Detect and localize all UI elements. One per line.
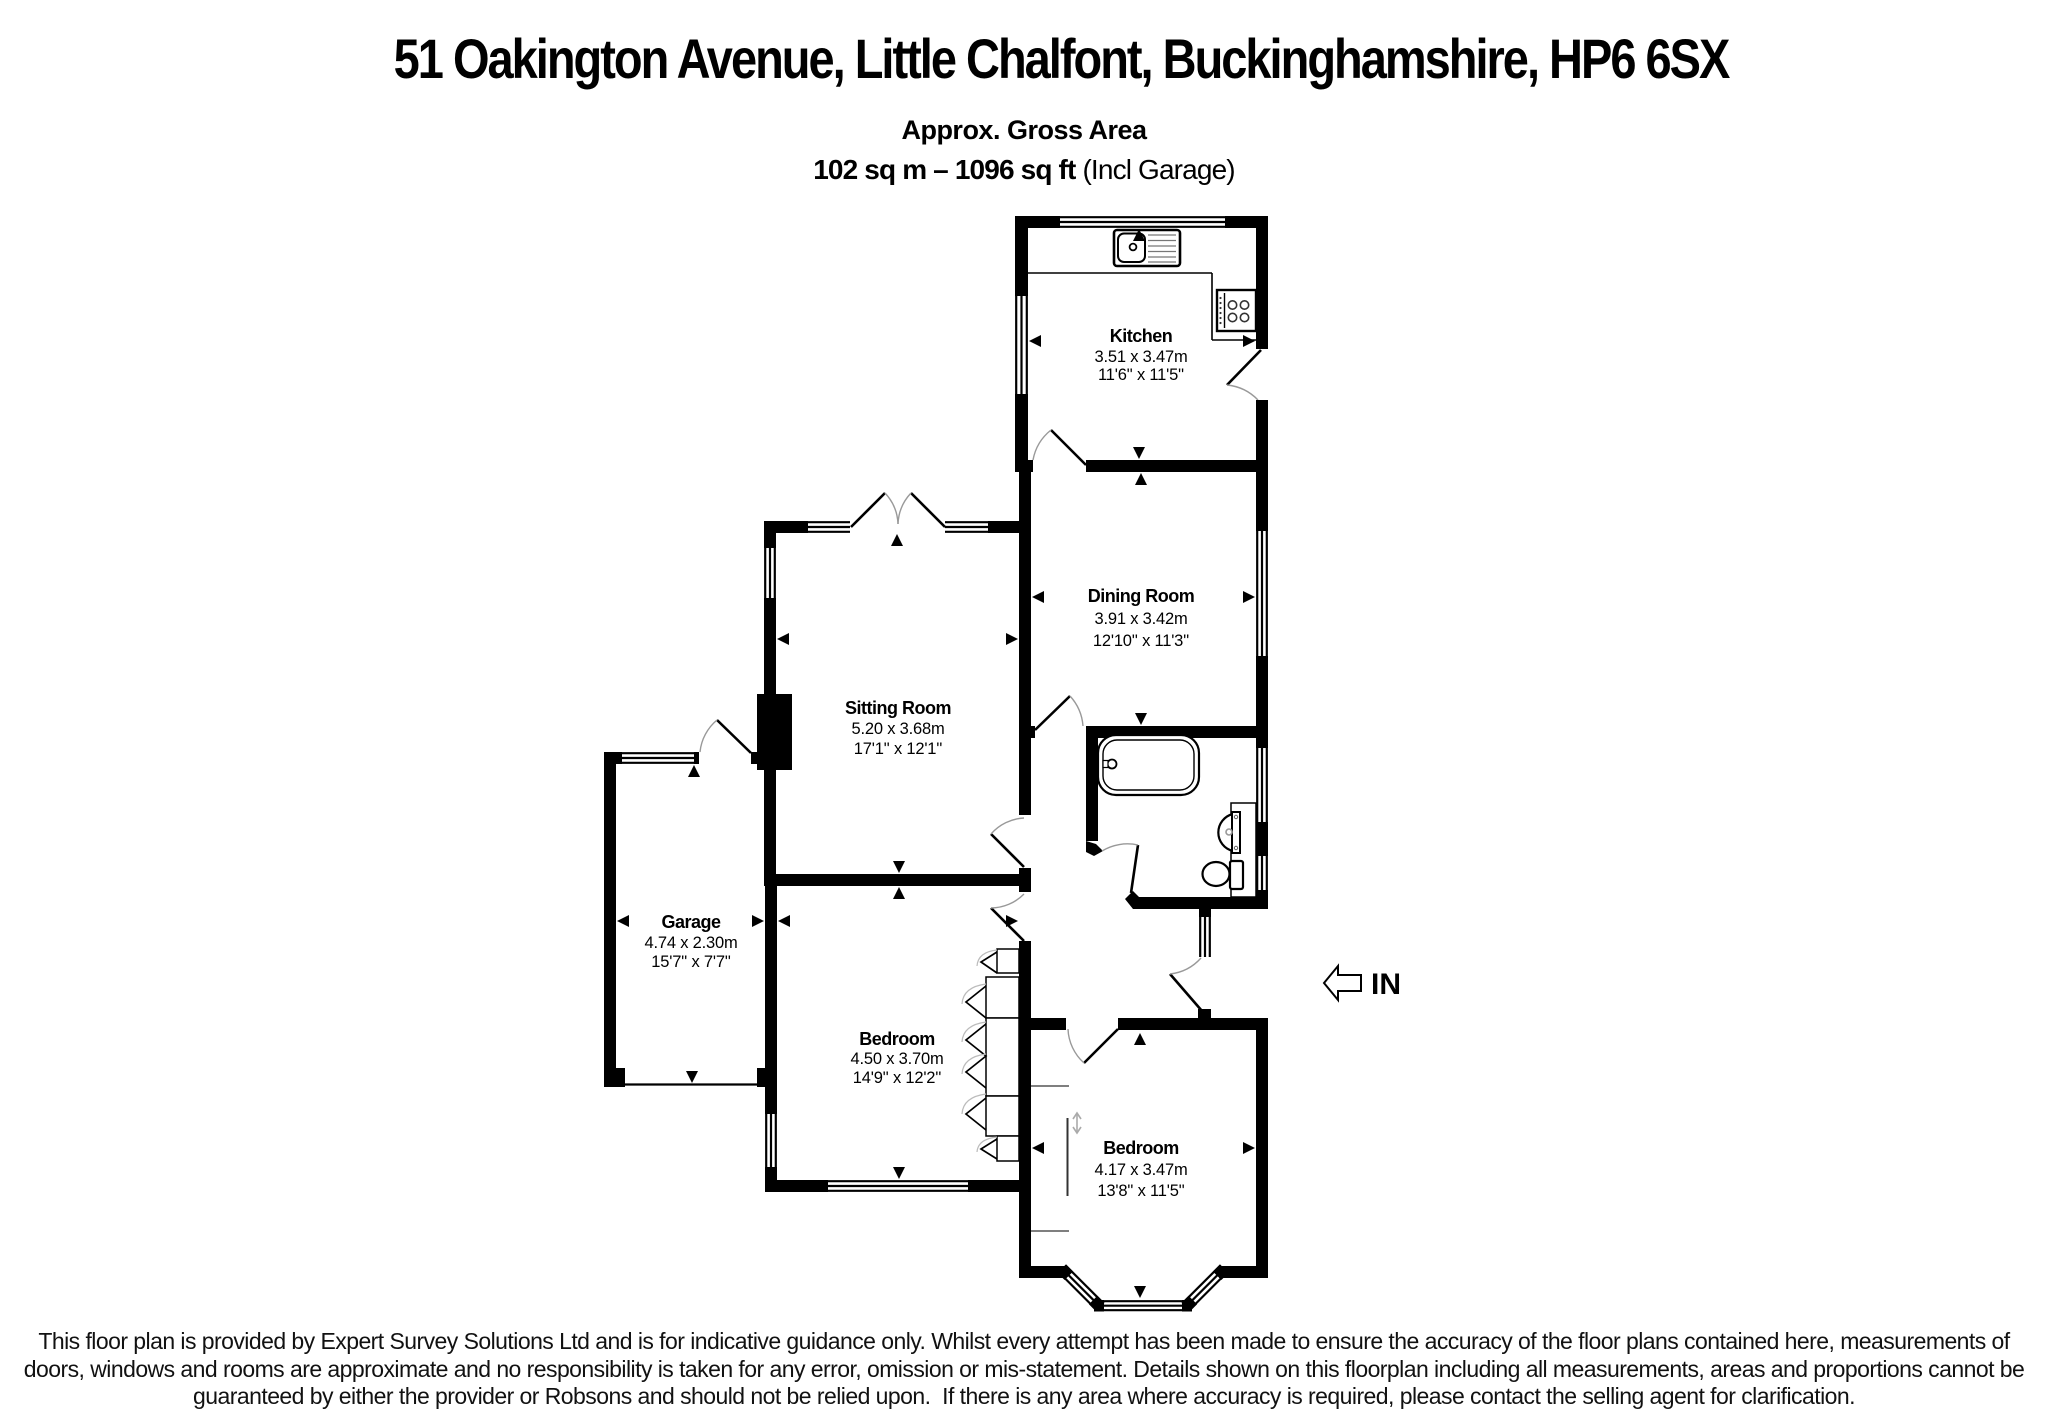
svg-text:3.91 x 3.42m: 3.91 x 3.42m — [1095, 610, 1188, 628]
svg-text:Approx. Gross Area: Approx. Gross Area — [901, 115, 1148, 145]
svg-text:5.20 x 3.68m: 5.20 x 3.68m — [852, 720, 945, 738]
svg-text:Bedroom: Bedroom — [1103, 1138, 1179, 1158]
svg-text:Sitting Room: Sitting Room — [845, 698, 951, 718]
svg-text:IN: IN — [1371, 968, 1401, 1001]
svg-text:3.51 x 3.47m: 3.51 x 3.47m — [1095, 348, 1188, 366]
svg-text:Kitchen: Kitchen — [1110, 326, 1173, 346]
svg-text:4.17 x 3.47m: 4.17 x 3.47m — [1095, 1161, 1188, 1179]
svg-text:4.50 x 3.70m: 4.50 x 3.70m — [851, 1050, 944, 1068]
svg-text:51 Oakington Avenue, Little Ch: 51 Oakington Avenue, Little Chalfont, Bu… — [394, 29, 1730, 90]
svg-text:13'8'' x 11'5'': 13'8'' x 11'5'' — [1097, 1182, 1184, 1200]
svg-text:102 sq m – 1096 sq ft (Incl Ga: 102 sq m – 1096 sq ft (Incl Garage) — [813, 154, 1235, 185]
svg-text:12'10'' x 11'3'': 12'10'' x 11'3'' — [1093, 632, 1189, 650]
svg-text:Dining Room: Dining Room — [1088, 586, 1194, 606]
svg-text:Bedroom: Bedroom — [859, 1029, 935, 1049]
svg-text:11'6'' x 11'5'': 11'6'' x 11'5'' — [1098, 366, 1184, 384]
svg-text:Garage: Garage — [661, 912, 721, 932]
svg-text:15'7'' x 7'7'': 15'7'' x 7'7'' — [651, 953, 730, 971]
svg-text:14'9'' x 12'2'': 14'9'' x 12'2'' — [853, 1069, 941, 1087]
svg-text:17'1'' x 12'1'': 17'1'' x 12'1'' — [854, 740, 942, 758]
svg-text:4.74 x 2.30m: 4.74 x 2.30m — [645, 934, 738, 952]
